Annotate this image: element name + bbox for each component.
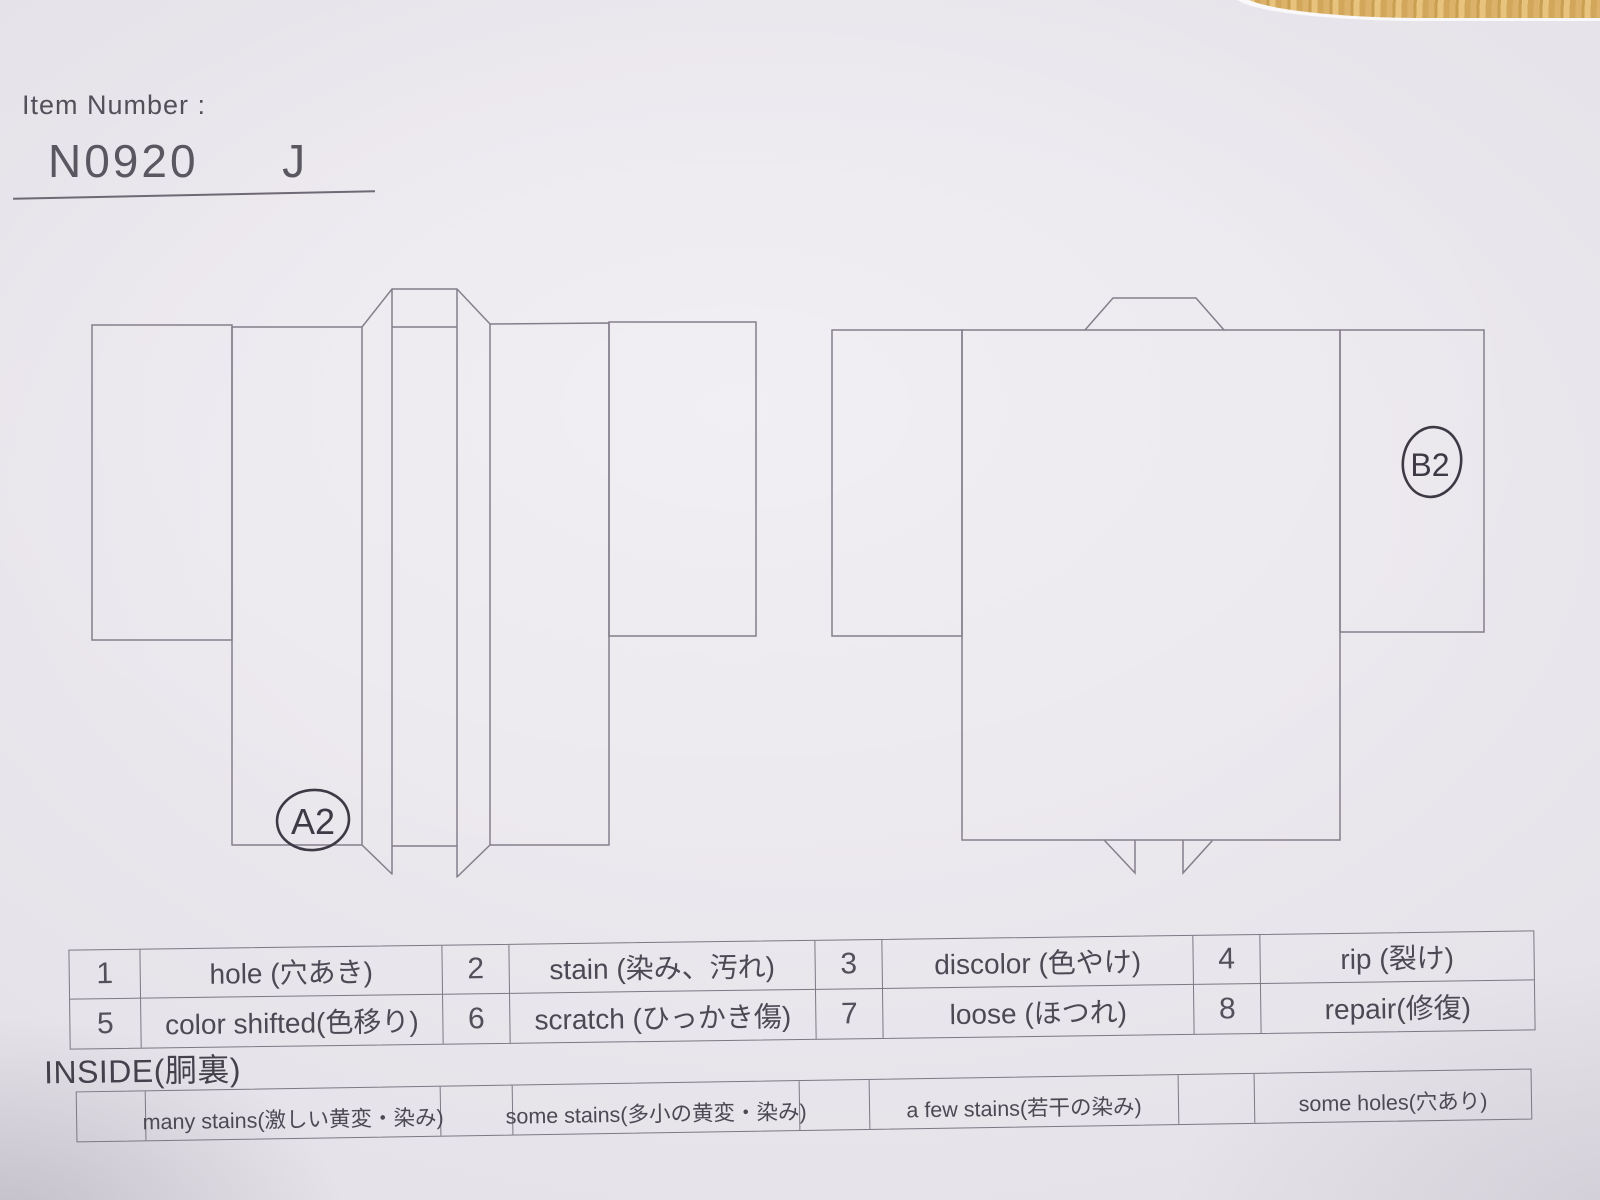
defect-label-cell: rip (裂け) xyxy=(1260,931,1534,984)
inside-label-cell: many stains(激しい黄変・染み) xyxy=(146,1087,442,1141)
back-left-sleeve xyxy=(832,330,962,636)
inside-label-cell: a few stains(若干の染み) xyxy=(870,1075,1180,1129)
defect-num-cell: 4 xyxy=(1193,935,1261,985)
back-collar xyxy=(1085,298,1224,330)
defect-num-cell: 2 xyxy=(442,945,510,995)
defect-label-cell: loose (ほつれ) xyxy=(883,985,1195,1038)
defect-label-cell: color shifted(色移り) xyxy=(141,995,444,1048)
defect-label-cell: stain (染み、汚れ) xyxy=(509,941,816,994)
inside-check-cell xyxy=(1179,1074,1256,1124)
defect-label-cell: discolor (色やけ) xyxy=(882,936,1194,989)
defect-num-cell: 5 xyxy=(70,999,142,1049)
inside-label-cell: some holes(穴あり) xyxy=(1255,1070,1532,1123)
front-kimono-diagram: A2 xyxy=(92,289,756,877)
defect-num-cell: 1 xyxy=(69,950,141,1000)
annotation-text-a2: A2 xyxy=(291,801,335,842)
inside-check-cell xyxy=(77,1091,147,1141)
inside-check-cell xyxy=(800,1080,871,1130)
front-left-sleeve xyxy=(92,325,232,640)
front-collar-band xyxy=(362,289,490,877)
defect-code-table: 1 hole (穴あき) 2 stain (染み、汚れ) 3 discolor … xyxy=(68,930,1535,1049)
front-body-outline xyxy=(232,323,609,846)
back-collar-tips xyxy=(1105,841,1212,873)
front-right-sleeve xyxy=(609,322,756,636)
inside-label-cell: some stains(多小の黄変・染み) xyxy=(513,1081,801,1135)
back-body xyxy=(962,330,1340,840)
defect-label-cell: hole (穴あき) xyxy=(140,946,443,999)
annotation-text-b2: B2 xyxy=(1410,447,1449,483)
defect-num-cell: 6 xyxy=(443,994,511,1044)
defect-num-cell: 8 xyxy=(1194,984,1262,1034)
defect-num-cell: 3 xyxy=(815,940,883,990)
defect-label-cell: repair(修復) xyxy=(1261,980,1535,1033)
inside-check-cell xyxy=(441,1086,514,1136)
defect-label-cell: scratch (ひっかき傷) xyxy=(510,990,817,1043)
defect-num-cell: 7 xyxy=(816,989,884,1039)
back-kimono-diagram: B2 xyxy=(832,298,1484,873)
inside-section-title: INSIDE(胴裏) xyxy=(44,1045,242,1094)
kimono-inspection-sheet-photo: Item Number : N0920 J A2 B2 xyxy=(0,0,1600,1200)
